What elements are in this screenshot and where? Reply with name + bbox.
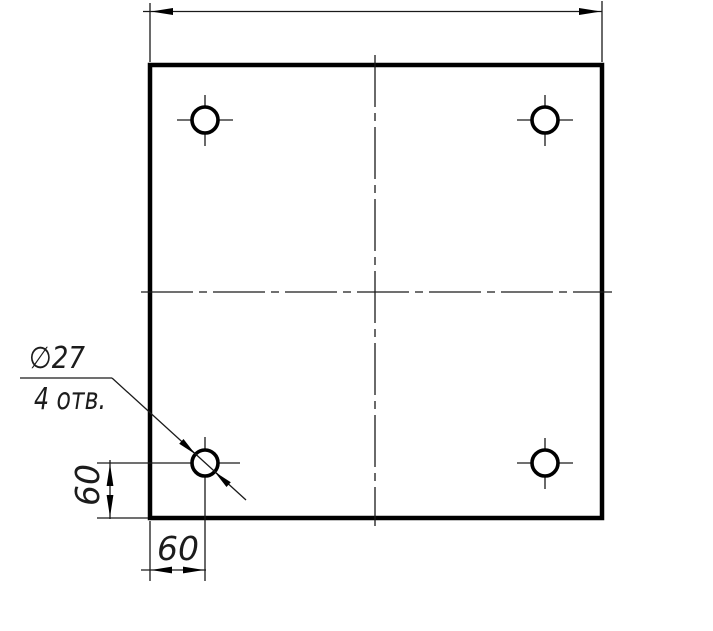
drawing-canvas: 60 60 ∅27 4 отв.	[0, 0, 713, 631]
dimension-text-bottom-60: 60	[157, 529, 199, 568]
plate-drawing-svg: 60 60 ∅27 4 отв.	[0, 0, 713, 631]
dimension-text-left-60: 60	[68, 464, 107, 506]
arrowhead-up	[107, 464, 114, 486]
hole-callout: ∅27 4 отв.	[20, 341, 246, 500]
hole-circle	[192, 107, 218, 133]
leader-arrowhead-lower	[215, 472, 231, 487]
hole-bottom-right	[517, 438, 573, 489]
arrowhead-down	[107, 495, 114, 517]
dimension-bottom-60: 60	[141, 521, 206, 581]
dimension-left-60: 60	[68, 460, 148, 519]
hole-top-right	[517, 95, 573, 146]
callout-text-hole-count: 4 отв.	[34, 382, 106, 417]
arrowhead-right	[579, 8, 601, 15]
arrowhead-left	[151, 8, 173, 15]
callout-text-diameter: ∅27	[29, 341, 85, 376]
hole-circle	[532, 107, 558, 133]
hole-circle	[532, 450, 558, 476]
dimension-top-overall	[143, 1, 602, 62]
leader-arrowhead-upper	[179, 439, 195, 454]
hole-top-left	[177, 95, 233, 146]
